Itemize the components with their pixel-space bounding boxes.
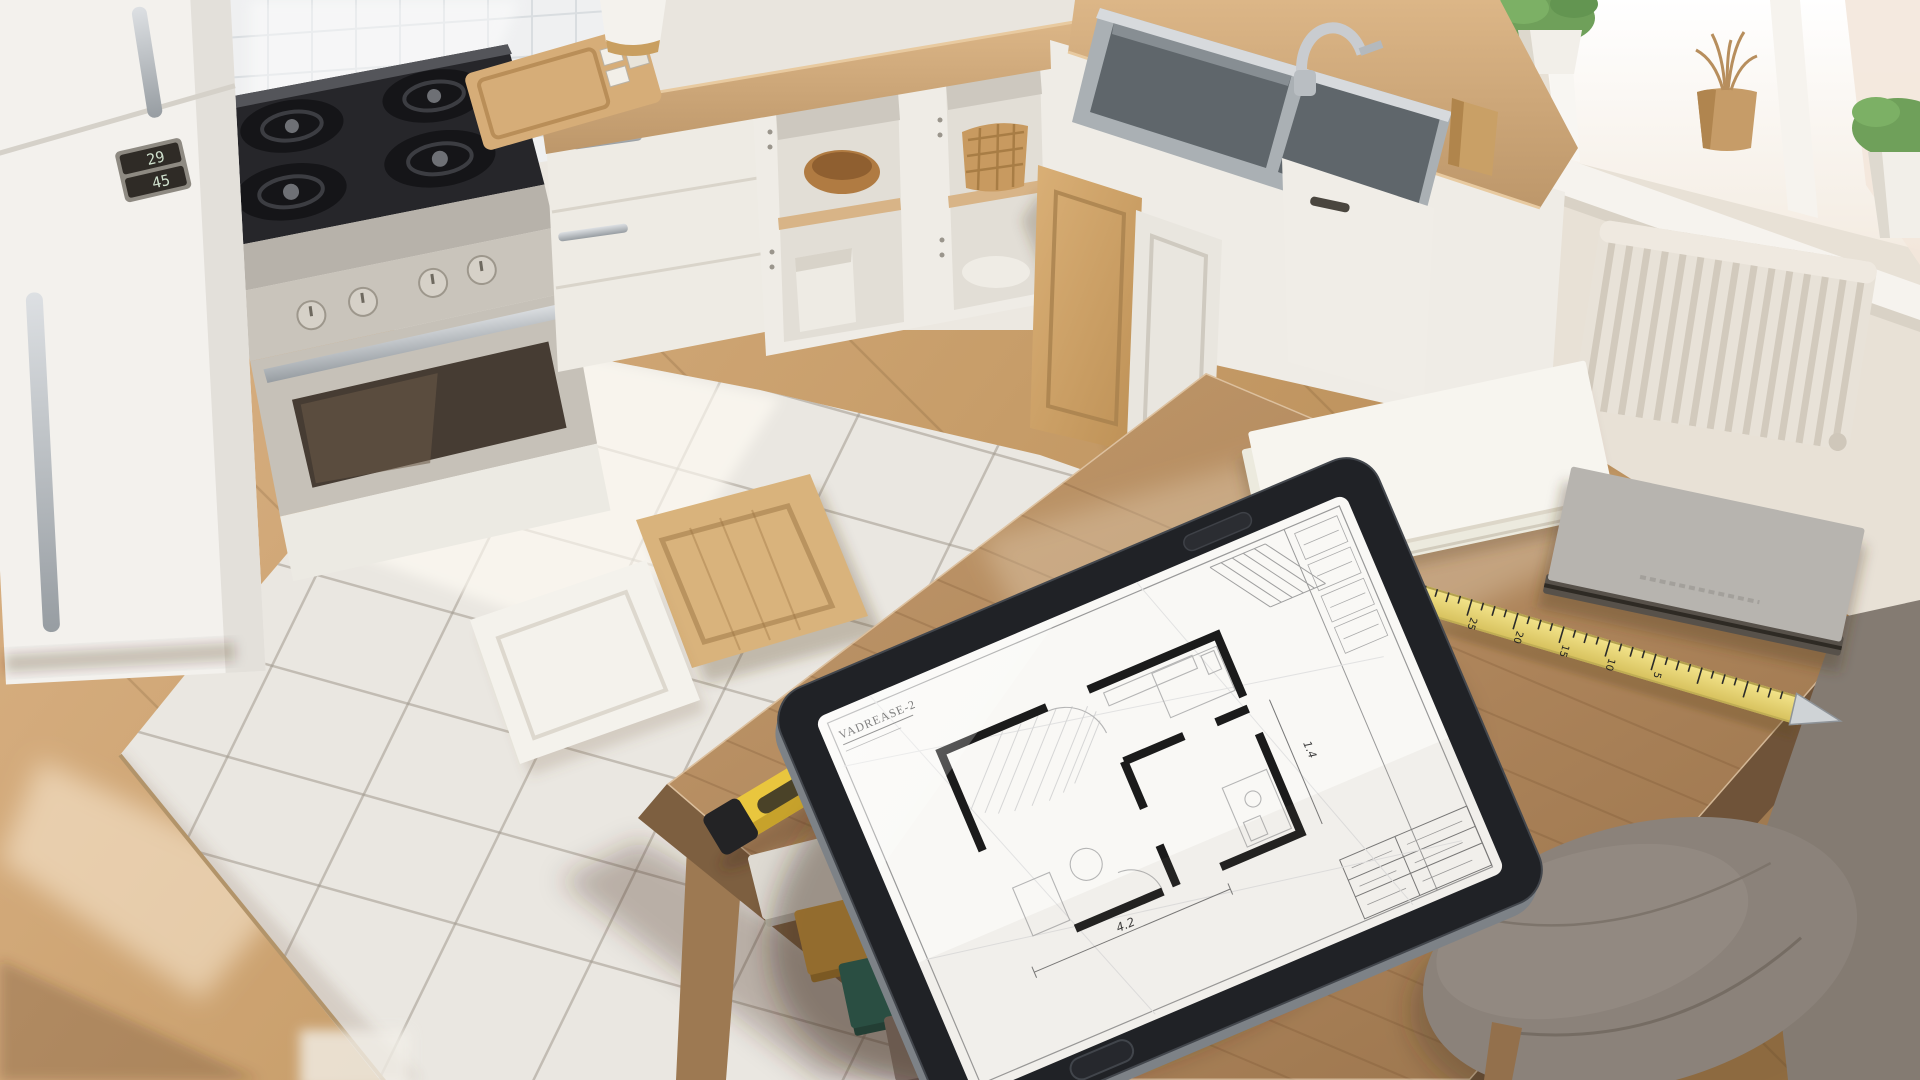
- white-bowl: [962, 256, 1030, 288]
- kitchen-renovation-scene: 29 45: [0, 0, 1920, 1080]
- paper-on-floor: [300, 1030, 410, 1080]
- fridge: 29 45: [0, 0, 266, 684]
- scene-canvas: 29 45: [0, 0, 1920, 1080]
- basket: [962, 123, 1028, 191]
- ceramic-canister: [600, 0, 666, 56]
